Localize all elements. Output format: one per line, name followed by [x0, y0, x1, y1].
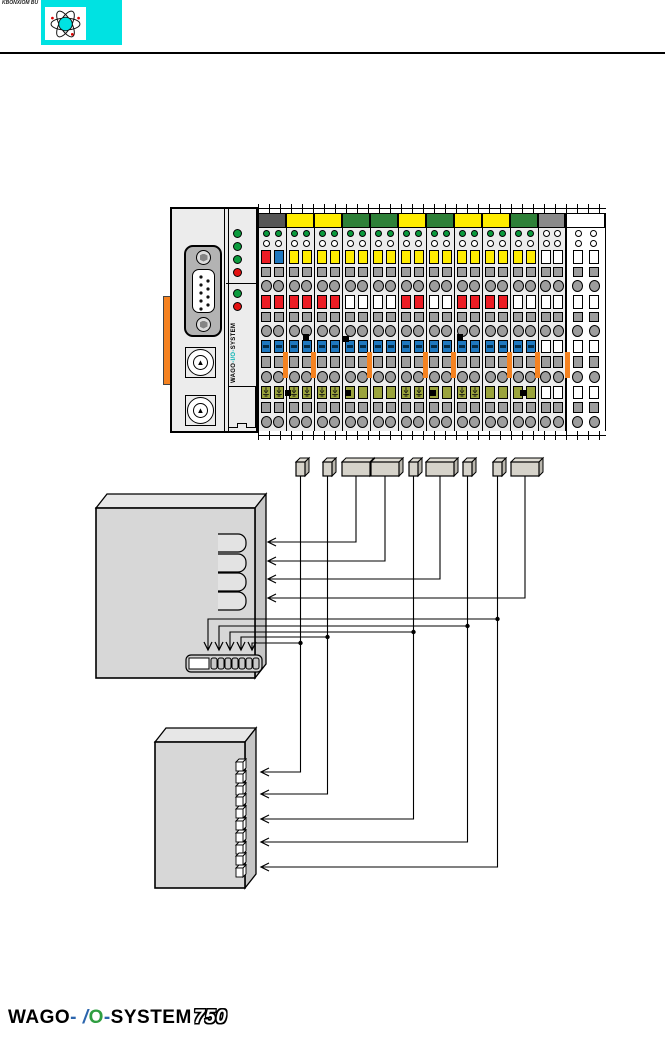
module-cell-yellow	[302, 250, 312, 264]
module-row-o	[567, 414, 605, 429]
module-cell-gray	[470, 402, 480, 413]
clamp-terminal	[513, 325, 524, 337]
module-cell-red	[289, 295, 299, 309]
module-cell-gray	[470, 267, 480, 277]
latch-notch	[520, 390, 526, 396]
clamp-terminal	[572, 416, 583, 428]
clamp-terminal	[401, 280, 412, 292]
clamp-terminal	[261, 416, 272, 428]
cell-dash	[304, 345, 310, 348]
module-cell-gray	[373, 402, 383, 413]
module-cell-gray	[401, 402, 411, 413]
module-marker-tab	[539, 213, 565, 228]
module-bottom-serration	[258, 431, 606, 440]
module-row-circ	[315, 238, 342, 248]
atom-icon	[47, 9, 84, 39]
module-row-g	[539, 354, 565, 369]
module-row-o	[567, 278, 605, 293]
module-cell-gray	[457, 402, 467, 413]
module-cell-olive	[373, 386, 383, 399]
bit-branch-arrow	[230, 632, 414, 650]
cell-dash	[291, 345, 297, 348]
status-led	[527, 230, 534, 237]
module-cell-blue	[386, 340, 396, 353]
module-cell-gray	[289, 402, 299, 413]
coupler-led-red	[233, 268, 242, 277]
status-led	[543, 230, 550, 237]
logo-series-750: 750	[194, 1007, 227, 1028]
terminal-hole	[471, 240, 478, 247]
module-marker-tab	[483, 213, 510, 228]
status-led	[575, 230, 582, 237]
rotary-switch-face: ▲	[187, 349, 214, 376]
module-row-o	[315, 278, 342, 293]
module-row-o	[483, 278, 510, 293]
module-cell-gray	[485, 402, 495, 413]
module-cell-gray	[345, 267, 355, 277]
module-row-o	[343, 369, 370, 384]
module-cell-red	[485, 295, 495, 309]
rotary-switch-face: ▲	[187, 397, 214, 424]
module-row-g	[259, 310, 286, 323]
status-led	[487, 230, 494, 237]
cell-dash	[403, 345, 409, 348]
rotary-switch-1: ▲	[185, 347, 216, 378]
box-top-face	[155, 728, 256, 742]
module-cell-white	[429, 295, 439, 309]
cell-dash	[472, 345, 478, 348]
module-data-box-word-9	[511, 458, 543, 476]
status-led	[387, 230, 394, 237]
cell-dash	[444, 345, 450, 348]
module-cell-white	[553, 340, 563, 353]
process-image-word-box	[96, 494, 266, 678]
module-cell-red	[414, 295, 424, 309]
module-row-g	[315, 265, 342, 278]
bit-data-arrow	[261, 476, 414, 819]
clamp-terminal	[485, 416, 496, 428]
clamp-terminal	[457, 280, 468, 292]
bit-slab-top	[236, 830, 246, 833]
module-row-g	[483, 310, 510, 323]
clamp-terminal	[572, 280, 583, 292]
module-row-o	[315, 369, 342, 384]
module-cell-white	[573, 386, 583, 399]
module-data-box-word-3	[342, 458, 374, 476]
module-cell-yellow	[526, 250, 536, 264]
module-cell-earth	[401, 386, 411, 399]
module-marker-tab	[455, 213, 482, 228]
clamp-terminal	[469, 280, 480, 292]
earth-ground-icon	[402, 386, 410, 398]
module-data-box-bit-2	[323, 458, 336, 476]
led-group-divider	[226, 283, 258, 284]
module-row-o	[483, 369, 510, 384]
manual-page: KBONXIOM BU	[0, 0, 665, 1043]
bit-branch-arrow	[241, 637, 328, 650]
coupler-led-group-mid	[233, 289, 242, 311]
module-cell-gray	[485, 312, 495, 322]
module-row-o	[427, 278, 454, 293]
clamp-terminal	[401, 371, 412, 383]
module-cell-earth	[470, 386, 480, 399]
module-row-circ	[399, 238, 426, 248]
bit-slab-top	[236, 818, 246, 821]
module-row-circ	[511, 238, 538, 248]
module-marker-tab	[427, 213, 454, 228]
earth-ground-icon	[415, 386, 423, 398]
status-led	[415, 230, 422, 237]
module-cell-gray	[573, 312, 583, 322]
module-row-g	[539, 310, 565, 323]
terminal-hole	[331, 240, 338, 247]
module-cell-gray	[470, 312, 480, 322]
clamp-terminal	[589, 280, 600, 292]
module-cell-gray	[386, 356, 396, 368]
module-cell-gray	[261, 356, 271, 368]
bit-slab-top	[236, 806, 246, 809]
bit-cell	[239, 658, 245, 669]
terminal-hole	[347, 240, 354, 247]
module-row-g	[511, 265, 538, 278]
module-cell-white	[513, 295, 523, 309]
terminal-hole	[590, 240, 597, 247]
coupler-led-green	[233, 255, 242, 264]
bit-slab-top	[236, 842, 246, 845]
module-row-d	[259, 384, 286, 400]
coupler-led-green	[233, 229, 242, 238]
module-row-g	[567, 310, 605, 323]
coupler-led-red	[233, 302, 242, 311]
status-led	[431, 230, 438, 237]
terminal-hole	[459, 240, 466, 247]
status-led	[347, 230, 354, 237]
fieldbus-coupler: WAGO-I/O-SYSTEM ▲ ▲	[170, 207, 258, 433]
module-row-a	[567, 248, 605, 265]
box-front-face	[155, 742, 245, 888]
module-row-d	[399, 384, 426, 400]
module-row-b	[399, 293, 426, 310]
module-cell-gray	[485, 267, 495, 277]
terminal-hole	[387, 240, 394, 247]
clamp-terminal	[540, 280, 551, 292]
bit-cell	[253, 658, 259, 669]
module-row-c	[455, 338, 482, 354]
io-module-7	[426, 213, 454, 431]
bit-slab	[236, 856, 243, 865]
module-row-o	[287, 278, 314, 293]
module-row-g	[427, 310, 454, 323]
process-image-mapping-diagram	[0, 0, 665, 1043]
module-cell-gray	[573, 356, 583, 368]
terminal-hole	[375, 240, 382, 247]
module-cell-yellow	[513, 250, 523, 264]
module-cell-red	[498, 295, 508, 309]
clamp-terminal	[525, 416, 536, 428]
module-cell-gray	[498, 312, 508, 322]
module-row-led	[455, 228, 482, 238]
io-module-10	[510, 213, 538, 431]
module-row-c	[287, 338, 314, 354]
status-led	[291, 230, 298, 237]
box-top-face	[96, 494, 266, 508]
module-cell-red	[330, 295, 340, 309]
module-cell-gray	[302, 267, 312, 277]
module-cell-gray	[358, 267, 368, 277]
cell-dash	[515, 345, 521, 348]
terminal-hole	[527, 240, 534, 247]
module-cell-red	[457, 295, 467, 309]
clamp-terminal	[413, 416, 424, 428]
module-row-led	[259, 228, 286, 238]
module-cell-white	[573, 340, 583, 353]
module-cell-gray	[289, 312, 299, 322]
module-row-a	[427, 248, 454, 265]
status-led	[443, 230, 450, 237]
clamp-terminal	[373, 280, 384, 292]
module-row-o	[259, 369, 286, 384]
module-row-circ	[567, 238, 605, 248]
logo-io-o: O	[89, 1007, 104, 1028]
module-row-circ	[287, 238, 314, 248]
terminal-hole	[515, 240, 522, 247]
status-led	[303, 230, 310, 237]
clamp-terminal	[261, 371, 272, 383]
module-row-g	[343, 400, 370, 414]
module-cell-gray	[429, 402, 439, 413]
module-row-o	[287, 414, 314, 429]
label-io: -I/O-	[231, 349, 237, 363]
status-led	[459, 230, 466, 237]
module-row-circ	[427, 238, 454, 248]
bit-slab	[236, 868, 243, 877]
module-row-c	[511, 338, 538, 354]
clamp-terminal	[540, 325, 551, 337]
module-cell-white	[345, 295, 355, 309]
module-row-g	[427, 400, 454, 414]
clamp-terminal	[413, 280, 424, 292]
earth-ground-icon	[262, 386, 270, 398]
panel-tick	[237, 423, 247, 428]
module-cell-white	[553, 295, 563, 309]
clamp-terminal	[385, 325, 396, 337]
module-cell-gray	[373, 267, 383, 277]
io-module-2	[286, 213, 314, 431]
bit-cell	[225, 658, 231, 669]
module-cell-gray	[589, 267, 599, 277]
module-cell-gray	[289, 267, 299, 277]
module-cell-earth	[457, 386, 467, 399]
module-cell-gray	[401, 356, 411, 368]
module-row-g	[455, 310, 482, 323]
bit-slab	[236, 797, 243, 806]
module-data-box-word-4	[371, 458, 403, 476]
clamp-terminal	[289, 280, 300, 292]
power-jumper-contact	[451, 352, 456, 378]
bit-slab-top	[236, 794, 246, 797]
cell-dash	[375, 345, 381, 348]
module-row-o	[567, 323, 605, 338]
module-row-led	[483, 228, 510, 238]
bit-slab	[236, 821, 243, 830]
module-row-o	[315, 323, 342, 338]
clamp-terminal	[540, 371, 551, 383]
cell-dash	[431, 345, 437, 348]
clamp-terminal	[589, 325, 600, 337]
rotary-pointer-icon: ▲	[193, 403, 208, 418]
module-cell-gray	[589, 312, 599, 322]
module-cell-gray	[553, 402, 563, 413]
logo-system: SYSTEM	[111, 1007, 192, 1028]
module-row-g	[343, 310, 370, 323]
bit-cell	[218, 658, 224, 669]
module-cell-gray	[442, 402, 452, 413]
clamp-terminal	[301, 280, 312, 292]
clamp-terminal	[329, 371, 340, 383]
terminal-hole	[263, 240, 270, 247]
module-cell-yellow	[498, 250, 508, 264]
module-cell-gray	[573, 402, 583, 413]
module-cell-blue	[358, 340, 368, 353]
module-row-circ	[483, 238, 510, 248]
module-cell-blue	[526, 340, 536, 353]
module-cell-olive	[526, 386, 536, 399]
module-cell-gray	[498, 267, 508, 277]
bit-slab-side	[243, 759, 246, 771]
module-row-led	[343, 228, 370, 238]
module-cell-blue	[485, 340, 495, 353]
clamp-terminal	[373, 325, 384, 337]
bit-slab-side	[243, 771, 246, 783]
module-cell-yellow	[414, 250, 424, 264]
bit-slab-side	[243, 853, 246, 865]
module-row-g	[567, 400, 605, 414]
module-row-g	[567, 354, 605, 369]
module-row-g	[315, 310, 342, 323]
module-cell-gray	[541, 312, 551, 322]
module-cell-gray	[330, 312, 340, 322]
latch-notch	[285, 390, 291, 396]
module-cell-gray	[457, 356, 467, 368]
module-cell-white	[589, 340, 599, 353]
module-cell-red	[274, 295, 284, 309]
module-row-o	[511, 414, 538, 429]
terminal-hole	[499, 240, 506, 247]
module-cell-white	[589, 250, 599, 264]
module-row-g	[259, 354, 286, 369]
module-cell-gray	[373, 356, 383, 368]
module-row-led	[399, 228, 426, 238]
packed-bit-word-pad	[189, 658, 209, 669]
terminal-hole	[487, 240, 494, 247]
clamp-terminal	[357, 280, 368, 292]
module-row-c	[483, 338, 510, 354]
junction-dot	[495, 617, 499, 621]
process-image-bit-box	[155, 728, 256, 888]
module-row-d	[287, 384, 314, 400]
module-row-b	[343, 293, 370, 310]
power-jumper-contact	[367, 352, 372, 378]
status-led	[331, 230, 338, 237]
module-data-box-bit-8	[493, 458, 506, 476]
module-cell-gray	[302, 402, 312, 413]
module-row-a	[539, 248, 565, 265]
module-cell-gray	[429, 267, 439, 277]
module-row-led	[287, 228, 314, 238]
dsub-screw-top	[196, 250, 211, 265]
latch-notch	[303, 334, 309, 340]
module-row-o	[455, 278, 482, 293]
earth-ground-icon	[471, 386, 479, 398]
module-row-g	[259, 400, 286, 414]
module-cell-gray	[274, 267, 284, 277]
logo-brand: WAGO	[8, 1007, 70, 1028]
terminal-hole	[291, 240, 298, 247]
clamp-terminal	[261, 325, 272, 337]
module-cell-white	[541, 250, 551, 264]
module-row-g	[399, 354, 426, 369]
terminal-hole	[403, 240, 410, 247]
module-cell-gray	[317, 312, 327, 322]
bit-slab-side	[243, 830, 246, 842]
module-cell-gray	[274, 312, 284, 322]
module-data-box-bit-5	[409, 458, 422, 476]
module-row-g	[483, 354, 510, 369]
module-cell-white	[541, 340, 551, 353]
dsub9-connector	[184, 245, 222, 337]
clamp-terminal	[429, 416, 440, 428]
module-cell-blue	[302, 340, 312, 353]
module-cell-white	[526, 295, 536, 309]
clamp-terminal	[413, 325, 424, 337]
module-cell-gray	[386, 402, 396, 413]
clamp-terminal	[345, 325, 356, 337]
module-row-g	[483, 265, 510, 278]
bit-slab	[236, 774, 243, 783]
module-row-g	[399, 265, 426, 278]
status-led	[590, 230, 597, 237]
module-cell-gray	[589, 356, 599, 368]
word-slot	[218, 554, 246, 572]
module-cell-white	[573, 250, 583, 264]
earth-ground-icon	[331, 386, 339, 398]
module-row-o	[343, 414, 370, 429]
bit-slab	[236, 786, 243, 795]
module-row-o	[399, 278, 426, 293]
power-jumper-contact	[283, 352, 288, 378]
module-row-circ	[539, 238, 565, 248]
module-row-d	[539, 384, 565, 400]
clamp-terminal	[553, 416, 564, 428]
clamp-terminal	[572, 325, 583, 337]
cell-dash	[416, 345, 422, 348]
clamp-terminal	[317, 280, 328, 292]
status-led	[499, 230, 506, 237]
io-module-11	[538, 213, 566, 431]
power-jumper-contact	[311, 352, 316, 378]
clamp-terminal	[289, 325, 300, 337]
coupler-vertical-label: WAGO-I/O-SYSTEM	[231, 323, 237, 383]
module-row-a	[399, 248, 426, 265]
module-row-circ	[343, 238, 370, 248]
clamp-terminal	[485, 325, 496, 337]
module-row-o	[315, 414, 342, 429]
bit-cell	[232, 658, 238, 669]
status-led	[515, 230, 522, 237]
module-cell-yellow	[317, 250, 327, 264]
module-cell-gray	[513, 402, 523, 413]
module-row-led	[567, 228, 605, 238]
